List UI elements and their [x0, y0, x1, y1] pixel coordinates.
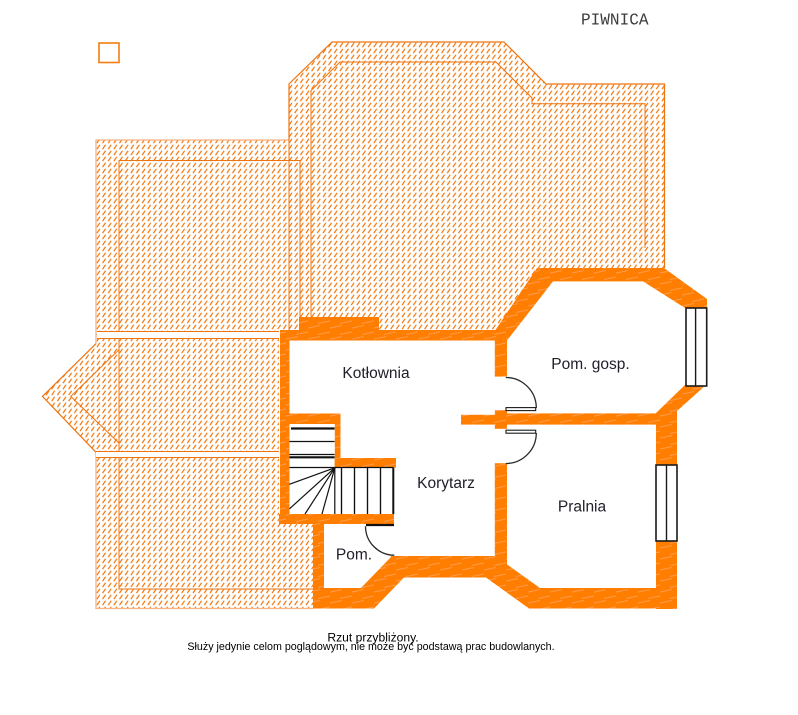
svg-text:Służy jedynie celom poglądowym: Służy jedynie celom poglądowym, nie może… — [187, 641, 554, 653]
svg-text:Kotłownia: Kotłownia — [342, 365, 410, 382]
svg-text:Pom. gosp.: Pom. gosp. — [551, 356, 629, 373]
svg-text:Pralnia: Pralnia — [558, 499, 607, 516]
svg-text:Korytarz: Korytarz — [417, 475, 475, 492]
svg-text:Pom.: Pom. — [336, 547, 372, 564]
svg-text:PIWNICA: PIWNICA — [581, 12, 649, 31]
